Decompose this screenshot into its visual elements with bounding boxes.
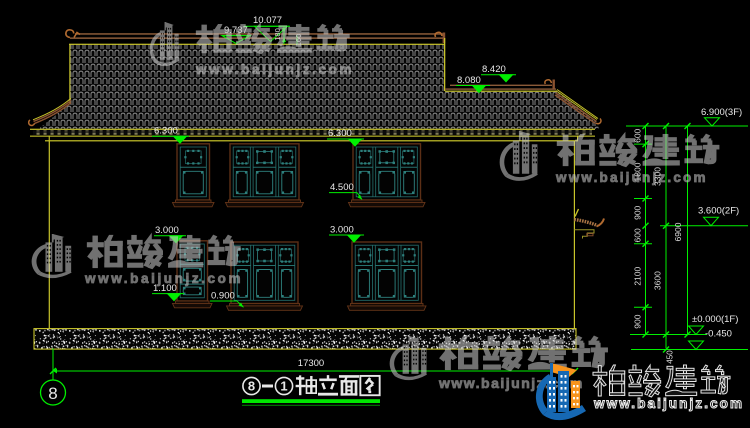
svg-text:www.baijunjz.com: www.baijunjz.com [555, 170, 708, 185]
svg-text:450: 450 [666, 350, 675, 364]
svg-text:3.600(2F): 3.600(2F) [698, 206, 739, 217]
svg-text:8.080: 8.080 [457, 75, 481, 86]
svg-text:www.baijunjz.com: www.baijunjz.com [84, 271, 243, 286]
svg-text:3.000: 3.000 [330, 225, 354, 236]
svg-text:±0.000(1F): ±0.000(1F) [692, 314, 738, 325]
svg-text:0.900: 0.900 [211, 291, 235, 302]
svg-text:17300: 17300 [298, 358, 324, 369]
svg-text:3.000: 3.000 [155, 225, 179, 236]
svg-text:www.baijunjz.com: www.baijunjz.com [195, 62, 354, 77]
svg-text:www.baijunjz.com: www.baijunjz.com [593, 396, 744, 411]
svg-text:8: 8 [248, 379, 255, 394]
svg-text:2100: 2100 [633, 266, 643, 285]
svg-text:-0.450: -0.450 [705, 329, 732, 340]
svg-text:1: 1 [280, 379, 287, 394]
svg-text:6.900(3F): 6.900(3F) [701, 107, 742, 118]
svg-text:6.300: 6.300 [154, 126, 178, 137]
svg-text:900: 900 [633, 314, 643, 328]
svg-text:10.077: 10.077 [253, 15, 282, 26]
svg-text:4.500: 4.500 [330, 182, 354, 193]
svg-text:6900: 6900 [673, 222, 683, 241]
svg-text:3600: 3600 [653, 271, 663, 290]
svg-text:900: 900 [633, 205, 643, 219]
svg-text:8.420: 8.420 [482, 64, 506, 75]
svg-text:6.300: 6.300 [328, 128, 352, 139]
svg-text:8: 8 [48, 384, 57, 403]
svg-text:600: 600 [633, 228, 643, 242]
